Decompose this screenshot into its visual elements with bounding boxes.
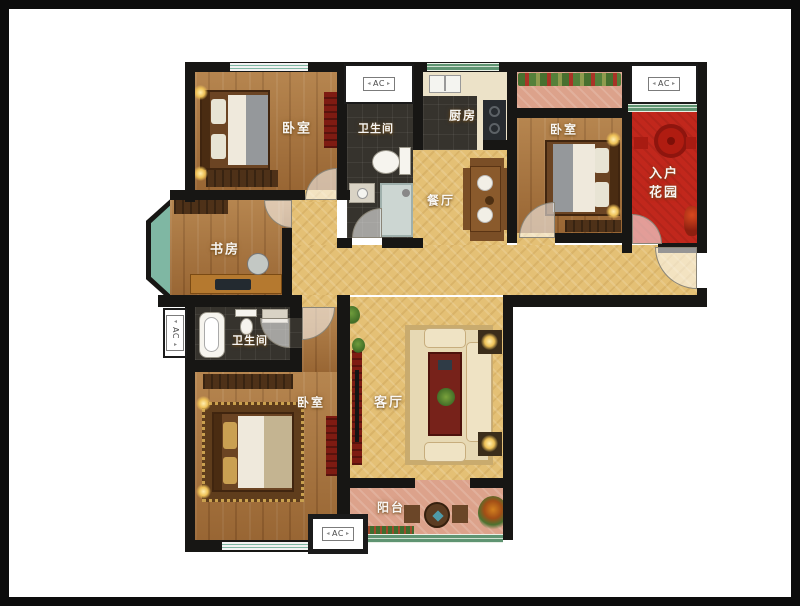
room-label-garden-line1: 入户 [649, 163, 679, 182]
sink-divider [444, 76, 446, 91]
double-bed [200, 90, 270, 170]
lamp-table [478, 330, 502, 354]
ac-unit-icon: AC [363, 77, 396, 91]
table-decor [438, 360, 452, 370]
wardrobe [203, 374, 293, 389]
desk-chair [247, 253, 269, 275]
wall [185, 62, 195, 202]
wall [413, 62, 423, 150]
blanket [264, 416, 292, 488]
kitchen-sink [429, 75, 461, 93]
pillow [223, 422, 237, 449]
potted-plant [352, 338, 365, 353]
room-label-garden-line2: 花园 [649, 182, 679, 201]
tub-basin [204, 317, 219, 352]
tv [355, 370, 359, 442]
wall [290, 307, 302, 318]
wardrobe [174, 200, 228, 214]
room-label-living: 客厅 [374, 392, 404, 411]
wall [503, 295, 513, 485]
bedside-lamp [196, 396, 211, 411]
wall [282, 228, 292, 295]
floor-plan: AC AC AC AC 卧室 卫生间 厨房 卧室 入户 花园 餐厅 书房 卫生间… [0, 0, 800, 606]
pillow [211, 99, 226, 124]
round-planter [654, 124, 688, 158]
window [628, 104, 697, 112]
room-label-study: 书房 [210, 239, 240, 258]
room-label-bath-2: 卫生间 [232, 332, 268, 348]
ac-unit-icon: AC [166, 315, 184, 352]
burner [489, 123, 500, 134]
wall [382, 238, 423, 248]
room-label-dining: 餐厅 [427, 192, 455, 209]
room-label-bedroom-1: 卧室 [282, 118, 312, 137]
room-label-bath-1: 卫生间 [358, 120, 394, 136]
blanket [553, 144, 573, 212]
balcony-chair [452, 505, 468, 523]
blanket [246, 95, 268, 165]
shower-stall [380, 183, 413, 237]
desk [190, 274, 282, 294]
pillow [594, 182, 609, 207]
wall [350, 478, 415, 488]
ac-platform: AC [163, 308, 187, 358]
stove [483, 100, 506, 140]
garden-bench [686, 137, 696, 149]
room-label-bedroom-3: 卧室 [297, 394, 325, 411]
ac-unit-icon: AC [322, 527, 355, 541]
wall [290, 348, 302, 360]
wall [555, 233, 622, 243]
floor-hall [292, 245, 697, 295]
pillow [211, 134, 226, 159]
ac-unit-icon: AC [648, 77, 681, 91]
ac-platform: AC [344, 64, 414, 104]
wall [517, 108, 622, 118]
toilet-tank [399, 147, 411, 175]
table-top-decor [432, 510, 443, 521]
garden-bench [634, 137, 648, 149]
toilet [372, 150, 400, 174]
pillow [223, 457, 237, 484]
coffee-table [428, 352, 462, 436]
bedside-lamp [196, 484, 211, 499]
vanity-sink [349, 183, 375, 203]
floor-lamp [481, 435, 498, 452]
headboard [214, 414, 222, 490]
sofa [466, 342, 492, 442]
floor-lamp [481, 333, 498, 350]
planter-center [667, 137, 675, 145]
tv-cabinet [352, 350, 362, 465]
double-bed [212, 412, 294, 492]
balcony-table [424, 502, 450, 528]
wall [513, 295, 707, 307]
room-label-bedroom-2: 卧室 [550, 121, 578, 138]
sofa-seat [424, 328, 466, 348]
bedside-lamp [193, 166, 208, 181]
basin [357, 188, 368, 199]
serving-dish [485, 196, 494, 205]
ac-platform: AC [308, 514, 368, 554]
pillow [594, 148, 609, 173]
wall [185, 360, 302, 372]
room-label-balcony: 阳台 [377, 499, 405, 516]
wall [158, 295, 302, 307]
wardrobe [565, 220, 621, 232]
wall [507, 62, 517, 150]
bathtub [199, 312, 225, 358]
wall [507, 150, 517, 243]
bedside-lamp [606, 132, 621, 147]
ac-platform: AC [630, 64, 698, 104]
wall [697, 62, 707, 247]
toilet-tank [235, 309, 257, 317]
burner [489, 106, 500, 117]
bookcase [324, 92, 337, 148]
shower-head [402, 189, 410, 197]
balcony-window [350, 534, 503, 543]
bedside-lamp [606, 204, 621, 219]
wall [170, 190, 305, 200]
plate [477, 175, 493, 191]
plate [477, 207, 493, 223]
wall [337, 238, 352, 248]
wall [470, 478, 513, 488]
sofa-seat [424, 442, 466, 462]
dresser [206, 170, 278, 187]
bedside-lamp [193, 85, 208, 100]
balcony-chair [404, 505, 420, 523]
wall [622, 243, 632, 253]
window [427, 63, 499, 71]
laptop [215, 279, 251, 290]
lamp-table [478, 432, 502, 456]
room-label-kitchen: 厨房 [449, 107, 477, 124]
headboard [202, 92, 210, 168]
flower-arrangement [437, 388, 455, 406]
window [230, 63, 308, 71]
floor-threshold [290, 318, 302, 348]
flower-bed [518, 73, 621, 86]
